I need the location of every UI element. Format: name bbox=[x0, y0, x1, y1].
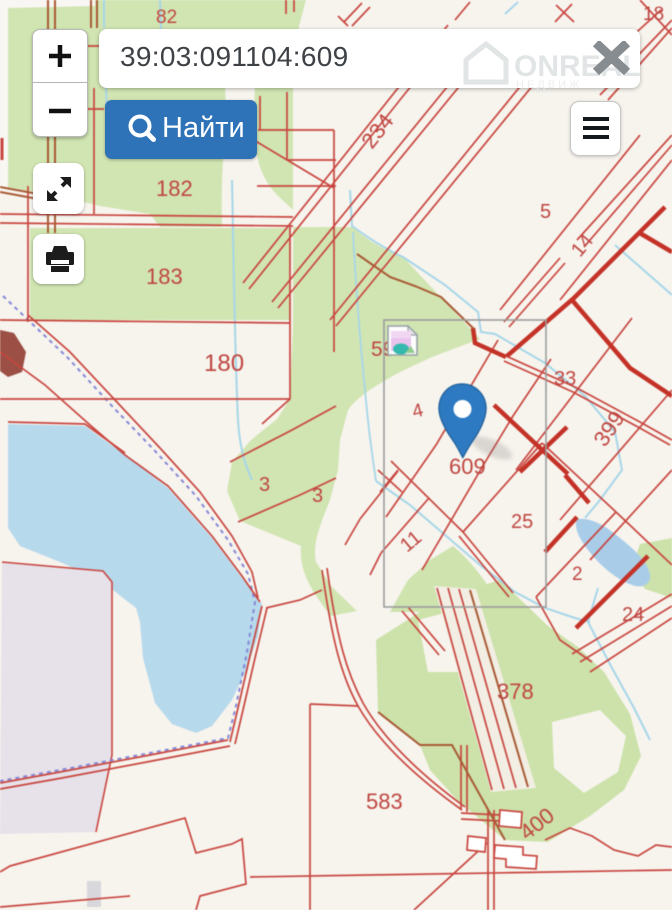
svg-text:24: 24 bbox=[622, 604, 644, 626]
svg-text:3: 3 bbox=[312, 485, 323, 507]
svg-text:378: 378 bbox=[497, 679, 534, 704]
svg-text:609: 609 bbox=[449, 454, 486, 479]
svg-text:183: 183 bbox=[146, 264, 183, 289]
svg-text:НЕДВИЖ: НЕДВИЖ bbox=[516, 79, 582, 90]
svg-text:3: 3 bbox=[259, 474, 270, 496]
svg-text:82: 82 bbox=[156, 7, 177, 28]
svg-text:18: 18 bbox=[643, 4, 664, 25]
svg-text:33: 33 bbox=[554, 368, 576, 390]
svg-text:180: 180 bbox=[204, 350, 244, 377]
svg-text:583: 583 bbox=[366, 789, 403, 814]
svg-text:5: 5 bbox=[540, 201, 551, 223]
svg-text:25: 25 bbox=[511, 511, 533, 533]
svg-text:182: 182 bbox=[156, 176, 193, 201]
svg-text:2: 2 bbox=[572, 564, 583, 585]
